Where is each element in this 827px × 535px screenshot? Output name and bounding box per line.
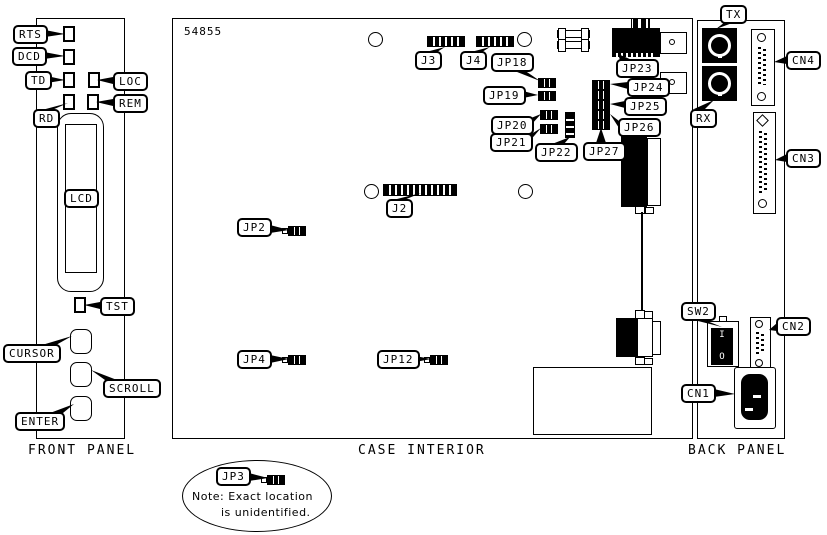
cn4-label: CN4	[786, 51, 821, 70]
enter-label: ENTER	[15, 412, 65, 431]
fuse-end-cap	[558, 39, 566, 52]
power-supply-box	[533, 367, 652, 435]
jp22-jumper	[565, 112, 575, 138]
jp12-jumper	[430, 355, 448, 365]
td-label: TD	[25, 71, 52, 90]
db25-connector-flange	[647, 138, 661, 206]
fuse	[557, 41, 590, 49]
rts-led	[63, 26, 75, 42]
rx-label: RX	[690, 109, 717, 128]
tx-bnc-connector	[702, 28, 737, 63]
mounting-hole	[518, 184, 533, 199]
jp20-jumper	[540, 110, 558, 120]
drawing-number: 54855	[184, 25, 222, 38]
sw2-rocker: I O	[711, 328, 733, 365]
jp21-label: JP21	[490, 133, 533, 152]
db9-connector-flange	[637, 318, 653, 357]
note-line-2: is unidentified.	[221, 506, 311, 519]
back-panel-caption: BACK PANEL	[688, 443, 786, 458]
scroll-label: SCROLL	[103, 379, 161, 398]
cn2-top-screw	[755, 320, 763, 328]
jp22-label: JP22	[535, 143, 578, 162]
jp21-jumper	[540, 124, 558, 134]
db9-interior-connector	[616, 318, 637, 357]
rem-label: REM	[113, 94, 148, 113]
jp24-label: JP24	[627, 78, 670, 97]
jp24-jumper	[592, 80, 610, 90]
connector-tab	[644, 358, 653, 365]
jumper	[592, 90, 610, 100]
screw-hole	[669, 39, 675, 45]
rx-bnc-connector	[702, 66, 737, 101]
cn4-bottom-screw	[757, 92, 766, 101]
j2-header	[383, 184, 457, 196]
mounting-hole	[364, 184, 379, 199]
ribbon-cable	[641, 212, 643, 312]
cn3-bottom-screw	[758, 199, 767, 208]
rem-led	[87, 94, 99, 110]
enter-button	[70, 396, 92, 421]
db9-connector-side	[652, 321, 661, 355]
cn2-label: CN2	[776, 317, 811, 336]
cn3-label: CN3	[786, 149, 821, 168]
jp19-jumper	[538, 91, 556, 101]
switch-off-mark: O	[719, 353, 724, 362]
j3-header	[427, 36, 465, 47]
jp18-label: JP18	[491, 53, 534, 72]
rd-label: RD	[33, 109, 60, 128]
mounting-hole	[517, 32, 532, 47]
loc-label: LOC	[113, 72, 148, 91]
switch-on-mark: I	[719, 331, 724, 340]
rd-led	[63, 94, 75, 110]
cn3-pins	[759, 131, 767, 193]
note-line-1: Note: Exact location	[192, 490, 313, 503]
jp19-label: JP19	[483, 86, 526, 105]
jp26-jumper	[592, 110, 610, 120]
cn1-prong-slot	[745, 408, 753, 411]
jp27-label: JP27	[583, 142, 626, 161]
j4-label: J4	[460, 51, 487, 70]
bnc-ring	[708, 72, 731, 95]
sw2-label: SW2	[681, 302, 716, 321]
loc-led	[88, 72, 100, 88]
jp4-jumper	[288, 355, 306, 365]
jp3-jumper	[267, 475, 285, 485]
dcd-led	[63, 49, 75, 65]
mounting-hole	[368, 32, 383, 47]
jp3-label: JP3	[216, 467, 251, 486]
transformer-block	[612, 28, 660, 57]
fuse-end-cap	[581, 39, 589, 52]
j2-label: J2	[386, 199, 413, 218]
jp2-label: JP2	[237, 218, 272, 237]
j3-label: J3	[415, 51, 442, 70]
rts-label: RTS	[13, 25, 48, 44]
cursor-label: CURSOR	[3, 344, 61, 363]
cursor-button	[70, 329, 92, 354]
cn2-bottom-screw	[755, 359, 763, 367]
cn2-pins	[756, 332, 764, 354]
jp12-label: JP12	[377, 350, 420, 369]
jp26-label: JP26	[618, 118, 661, 137]
tst-label: TST	[100, 297, 135, 316]
j4-header	[476, 36, 514, 47]
td-led	[63, 72, 75, 88]
cn4-pins	[758, 47, 766, 85]
dcd-label: DCD	[12, 47, 47, 66]
lcd-label: LCD	[64, 189, 99, 208]
jp23-label: JP23	[616, 59, 659, 78]
jp27-jumper	[592, 120, 610, 130]
cn4-top-screw	[757, 33, 766, 42]
jp2-jumper	[288, 226, 306, 236]
cn1-prong-slot	[753, 395, 761, 398]
jp25-label: JP25	[624, 97, 667, 116]
tst-led	[74, 297, 86, 313]
scroll-button	[70, 362, 92, 387]
jp4-label: JP4	[237, 350, 272, 369]
tx-label: TX	[720, 5, 747, 24]
connector-tab	[635, 206, 645, 214]
fuse	[557, 30, 590, 38]
jp18-jumper	[538, 78, 556, 88]
case-interior-caption: CASE INTERIOR	[358, 443, 486, 458]
bnc-ring	[708, 34, 731, 57]
front-panel-caption: FRONT PANEL	[28, 443, 136, 458]
jp25-jumper	[592, 100, 610, 110]
connector-tab	[645, 207, 654, 214]
screw-hole	[669, 79, 675, 85]
wiring-diagram: RTS DCD TD LOC RD REM LCD TST CURSOR SCR…	[0, 0, 827, 535]
cn1-label: CN1	[681, 384, 716, 403]
